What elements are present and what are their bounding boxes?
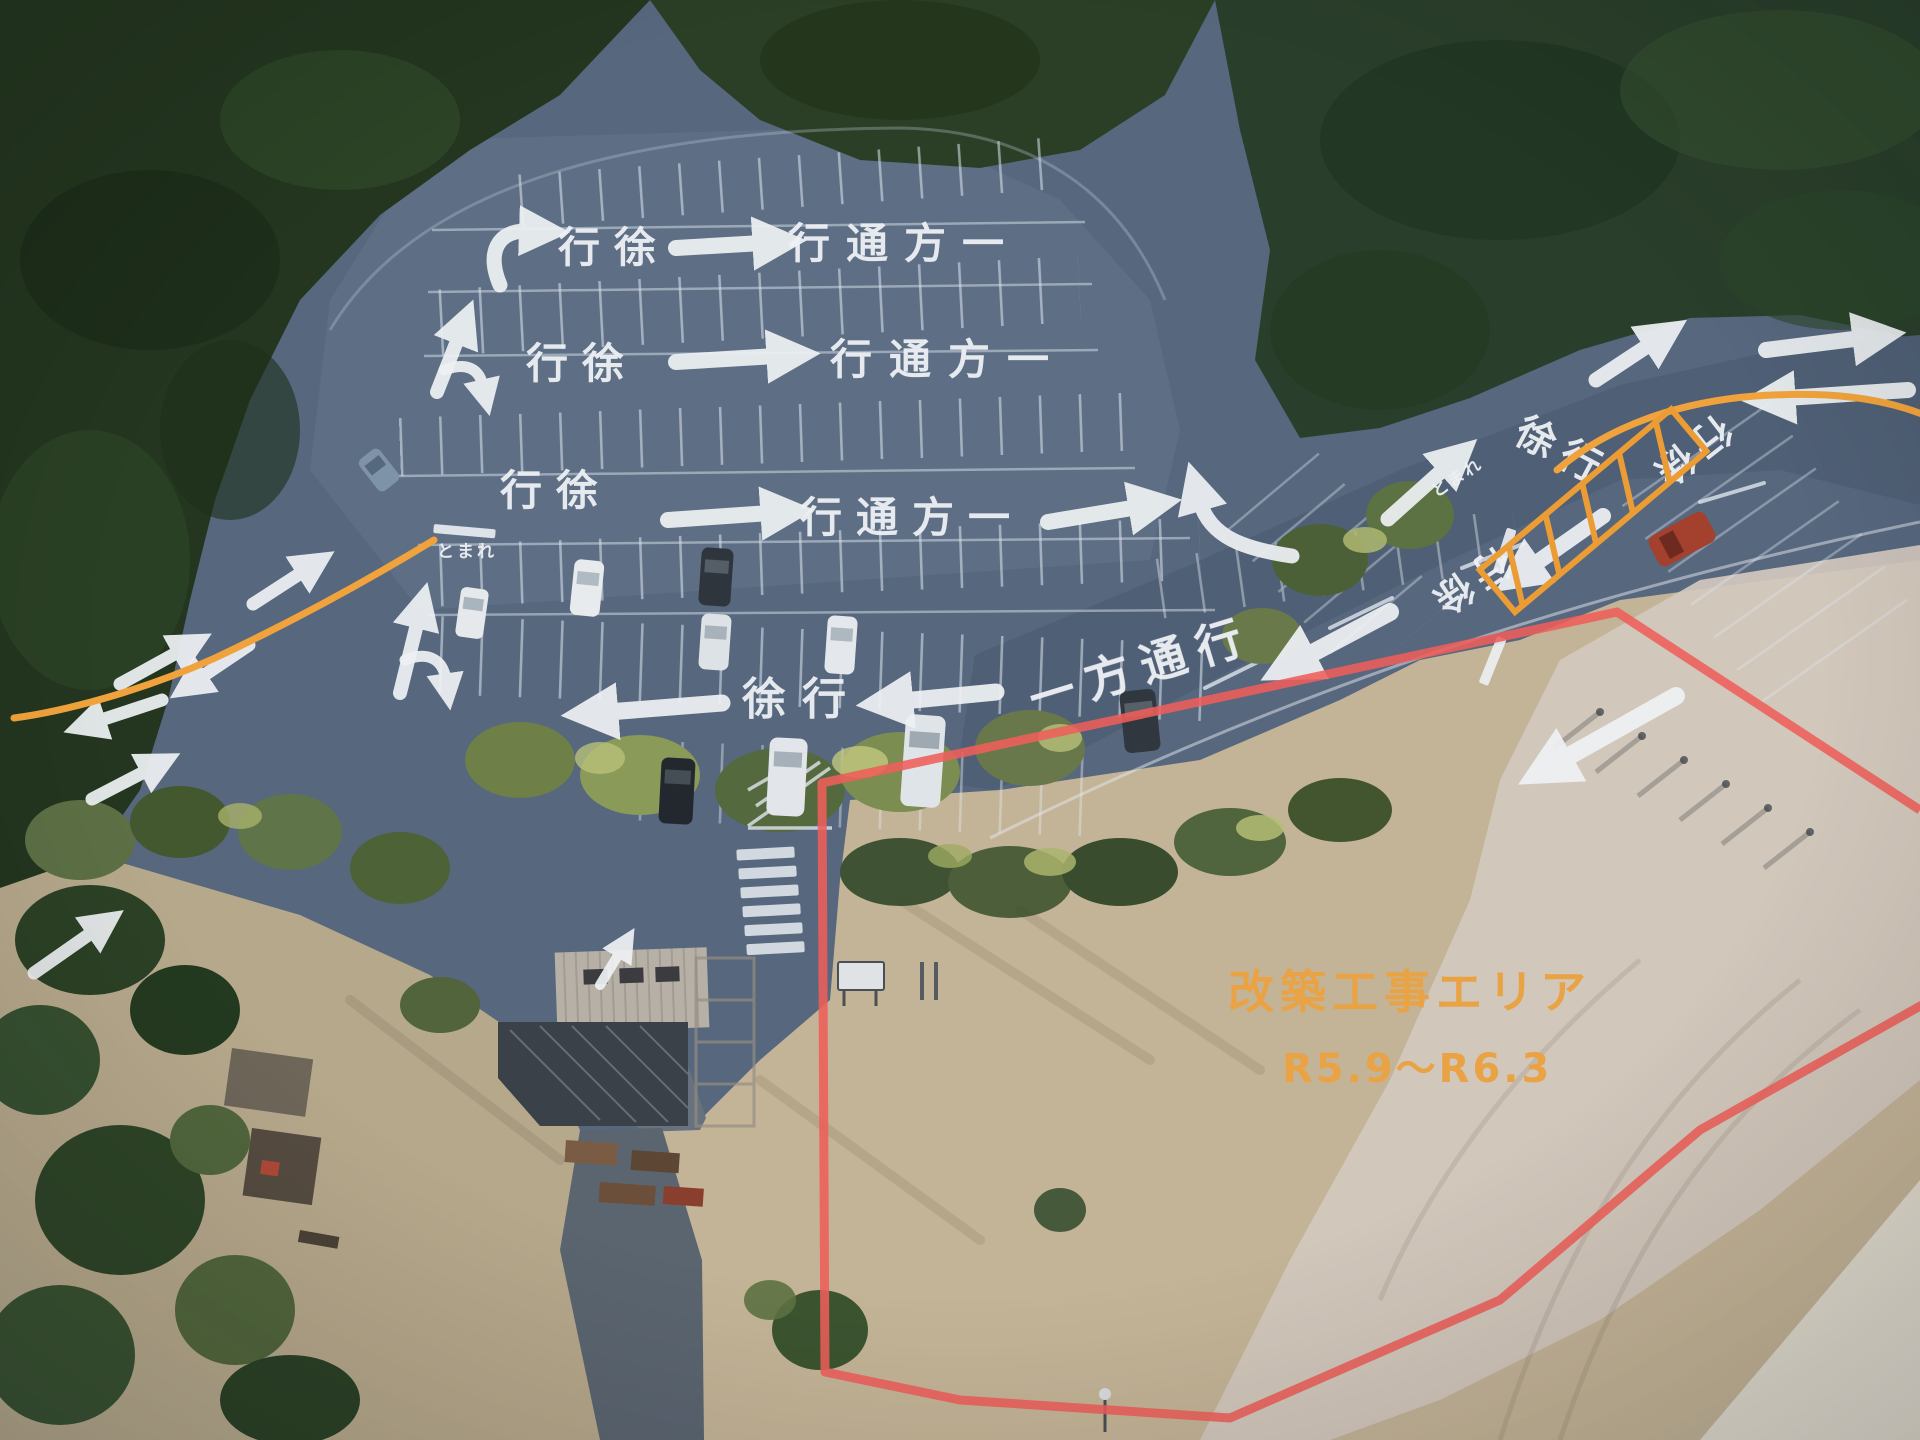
photo-vignette — [0, 0, 1920, 1440]
map-canvas: 行徐 行通方一 行徐 行通方一 行徐 行通方一 徐行 一方通行 徐行 行徐 行徐… — [0, 0, 1920, 1440]
aerial-parking-map: 行徐 行通方一 行徐 行通方一 行徐 行通方一 徐行 一方通行 徐行 行徐 行徐… — [0, 0, 1920, 1440]
